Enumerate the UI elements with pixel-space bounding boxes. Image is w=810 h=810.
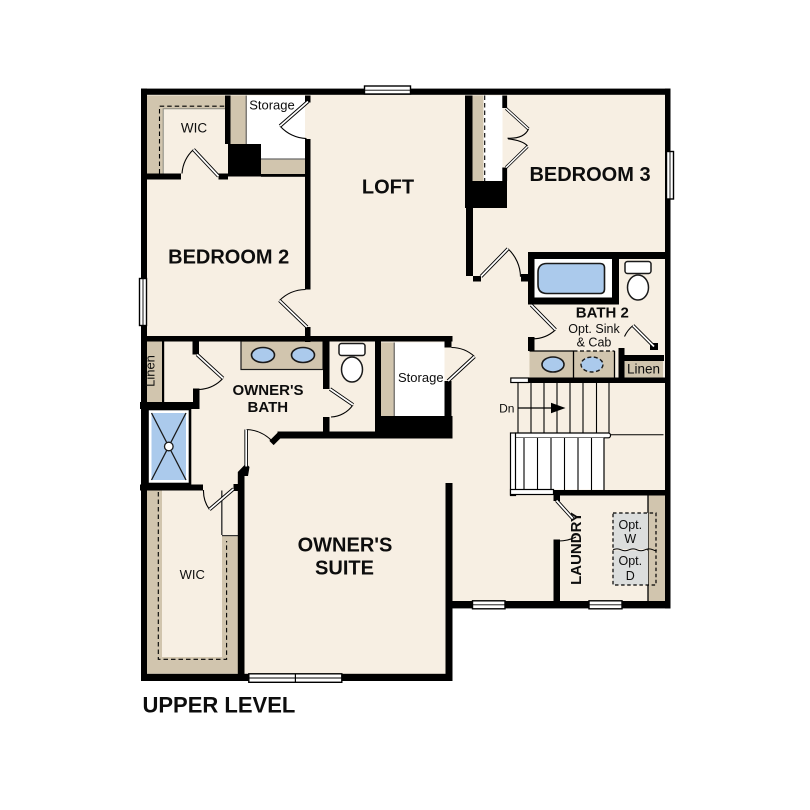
- svg-text:Dn: Dn: [499, 402, 514, 416]
- svg-text:Storage: Storage: [249, 98, 295, 113]
- svg-text:Linen: Linen: [142, 355, 157, 387]
- svg-text:Storage: Storage: [398, 370, 444, 385]
- svg-text:Opt.: Opt.: [618, 518, 642, 532]
- svg-text:OWNER'S: OWNER'S: [298, 535, 393, 557]
- svg-text:Opt.: Opt.: [618, 554, 642, 568]
- svg-text:Linen: Linen: [627, 362, 660, 377]
- svg-text:LAUNDRY: LAUNDRY: [568, 512, 585, 585]
- svg-text:BEDROOM 3: BEDROOM 3: [529, 164, 650, 186]
- svg-text:BATH 2: BATH 2: [576, 305, 629, 322]
- svg-text:OWNER'S: OWNER'S: [232, 382, 303, 399]
- svg-text:D: D: [626, 569, 635, 583]
- svg-text:BEDROOM 2: BEDROOM 2: [168, 247, 289, 269]
- svg-text:& Cab: & Cab: [577, 336, 612, 350]
- svg-text:W: W: [624, 532, 636, 546]
- svg-text:WIC: WIC: [181, 121, 207, 136]
- svg-text:BATH: BATH: [248, 399, 289, 416]
- svg-text:WIC: WIC: [180, 567, 205, 582]
- svg-text:SUITE: SUITE: [315, 558, 374, 580]
- svg-text:UPPER LEVEL: UPPER LEVEL: [143, 693, 296, 718]
- svg-text:LOFT: LOFT: [362, 177, 414, 199]
- svg-text:Opt. Sink: Opt. Sink: [568, 322, 620, 336]
